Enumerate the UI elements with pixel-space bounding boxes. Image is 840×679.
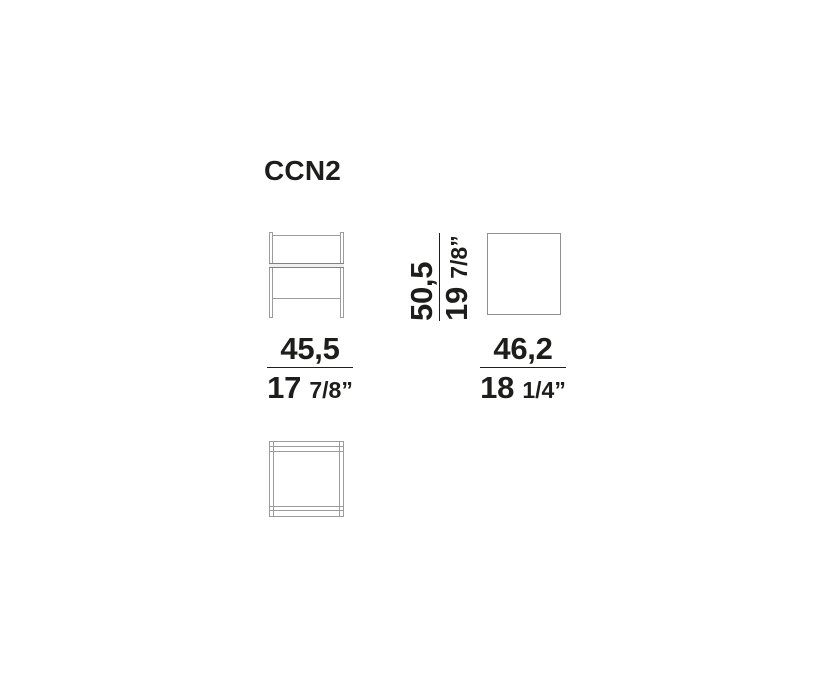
front-view-drawing bbox=[269, 232, 344, 318]
front-width-dimension-cm: 45,5 bbox=[248, 334, 372, 364]
front-width-dimension-inches: 17 7/8” bbox=[248, 372, 372, 406]
front-width-dimension-divider bbox=[267, 367, 353, 368]
front-view-right-leg bbox=[340, 232, 344, 318]
product-title: CCN2 bbox=[264, 157, 341, 185]
top-view-frame-line bbox=[270, 451, 343, 452]
height-dimension-inches-whole: 19 bbox=[439, 287, 474, 321]
front-view-shelf bbox=[269, 263, 344, 268]
side-depth-dimension-inches: 18 1/4” bbox=[461, 372, 585, 406]
side-depth-dimension-inches-fraction: 1/4” bbox=[522, 377, 565, 403]
side-depth-dimension-inches-whole: 18 bbox=[480, 370, 514, 405]
front-width-dimension: 45,5 17 7/8” bbox=[248, 334, 372, 406]
front-view-left-leg bbox=[269, 232, 273, 318]
product-spec-sheet: CCN2 50,5 19 7/8” 45,5 17 7/8” 46,2 18 1… bbox=[0, 0, 840, 679]
height-dimension-inches-fraction: 7/8” bbox=[446, 235, 472, 278]
top-view-frame-line bbox=[270, 446, 343, 447]
top-view-frame-line bbox=[273, 442, 274, 516]
height-dimension: 50,5 19 7/8” bbox=[408, 227, 474, 321]
side-view-drawing bbox=[487, 233, 561, 315]
front-view-bottom-rail bbox=[272, 298, 341, 299]
front-width-dimension-inches-whole: 17 bbox=[267, 370, 301, 405]
top-view-frame-line bbox=[270, 510, 343, 511]
top-view-frame-line bbox=[270, 506, 343, 507]
height-dimension-inches: 19 7/8” bbox=[442, 227, 474, 321]
top-view-frame-line bbox=[339, 442, 340, 516]
side-depth-dimension: 46,2 18 1/4” bbox=[461, 334, 585, 406]
side-depth-dimension-divider bbox=[480, 367, 566, 368]
side-depth-dimension-cm: 46,2 bbox=[461, 334, 585, 364]
front-view-top-rail bbox=[272, 235, 341, 236]
height-dimension-cm: 50,5 bbox=[408, 227, 436, 321]
top-view-drawing bbox=[269, 441, 344, 517]
front-width-dimension-inches-fraction: 7/8” bbox=[309, 377, 352, 403]
